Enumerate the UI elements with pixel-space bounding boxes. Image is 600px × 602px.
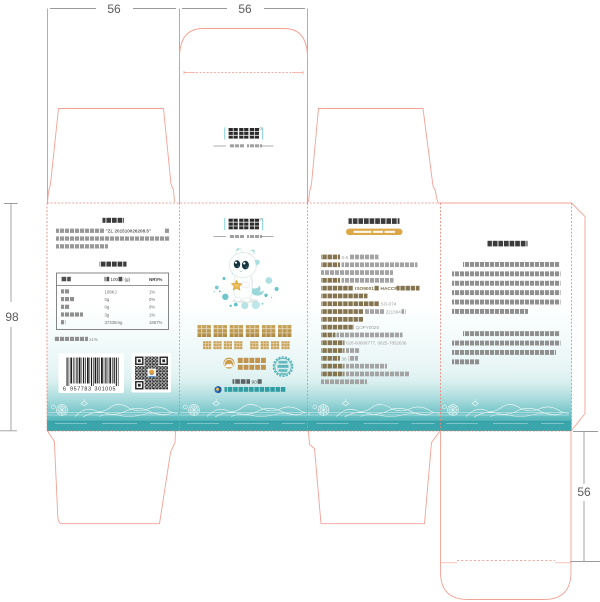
svg-text:56: 56 (238, 2, 252, 16)
svg-text:56: 56 (577, 485, 591, 499)
svg-text:0%: 0% (149, 305, 155, 310)
svg-text:1%: 1% (149, 312, 155, 317)
svg-text:6: 6 (63, 387, 66, 393)
svg-text:37335mg: 37335mg (105, 320, 124, 325)
svg-text:957783: 957783 (70, 387, 92, 393)
svg-text:1867%: 1867% (149, 320, 163, 325)
svg-text:3g: 3g (105, 312, 110, 317)
svg-text:56: 56 (107, 2, 121, 16)
svg-text:109KJ: 109KJ (105, 289, 117, 294)
svg-text:301005: 301005 (95, 387, 117, 393)
svg-text:90: 90 (252, 380, 258, 385)
svg-text:HACCP: HACCP (381, 286, 399, 292)
svg-text:0%: 0% (149, 297, 155, 302)
svg-text:NRV%: NRV% (149, 277, 162, 282)
svg-text:221304: 221304 (386, 310, 402, 315)
svg-text:98: 98 (5, 310, 19, 324)
svg-text:0-6: 0-6 (342, 255, 349, 260)
svg-text:(g): (g) (125, 277, 131, 282)
svg-text:SO-074: SO-074 (381, 302, 397, 307)
svg-text:028-60808777, 0825-7852636: 028-60808777, 0825-7852636 (346, 341, 407, 346)
svg-text:1%: 1% (149, 289, 155, 294)
svg-text:≥1%: ≥1% (89, 337, 98, 342)
svg-text:Q/JPY0025: Q/JPY0025 (356, 325, 380, 330)
svg-text:ISO9001: ISO9001 (355, 286, 374, 292)
svg-text:"ZL 201510026208.5": "ZL 201510026208.5" (106, 229, 152, 234)
svg-text:100: 100 (111, 277, 119, 282)
svg-text:36: 36 (342, 356, 348, 361)
svg-text:0g: 0g (105, 297, 110, 302)
svg-text:0g: 0g (105, 305, 110, 310)
